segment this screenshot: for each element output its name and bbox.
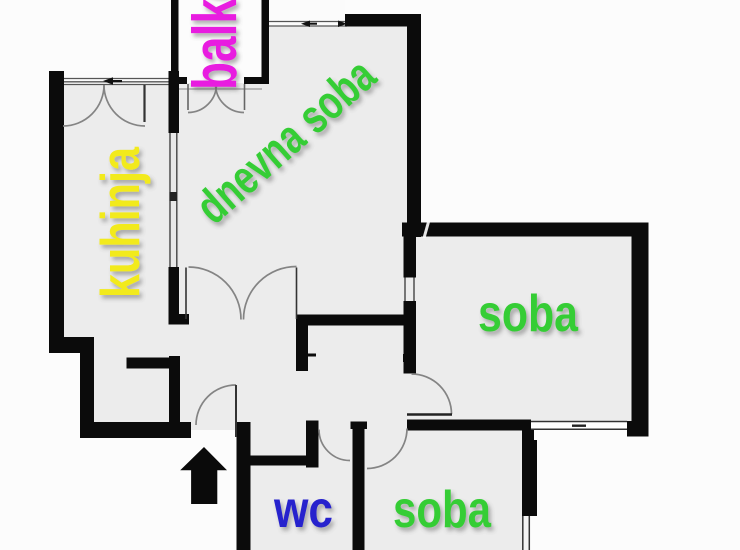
svg-text:balkon: balkon <box>181 0 250 90</box>
svg-text:soba: soba <box>478 285 579 343</box>
svg-text:wc: wc <box>273 481 333 539</box>
svg-text:kuhinja: kuhinja <box>89 147 151 298</box>
svg-text:soba: soba <box>393 481 492 539</box>
